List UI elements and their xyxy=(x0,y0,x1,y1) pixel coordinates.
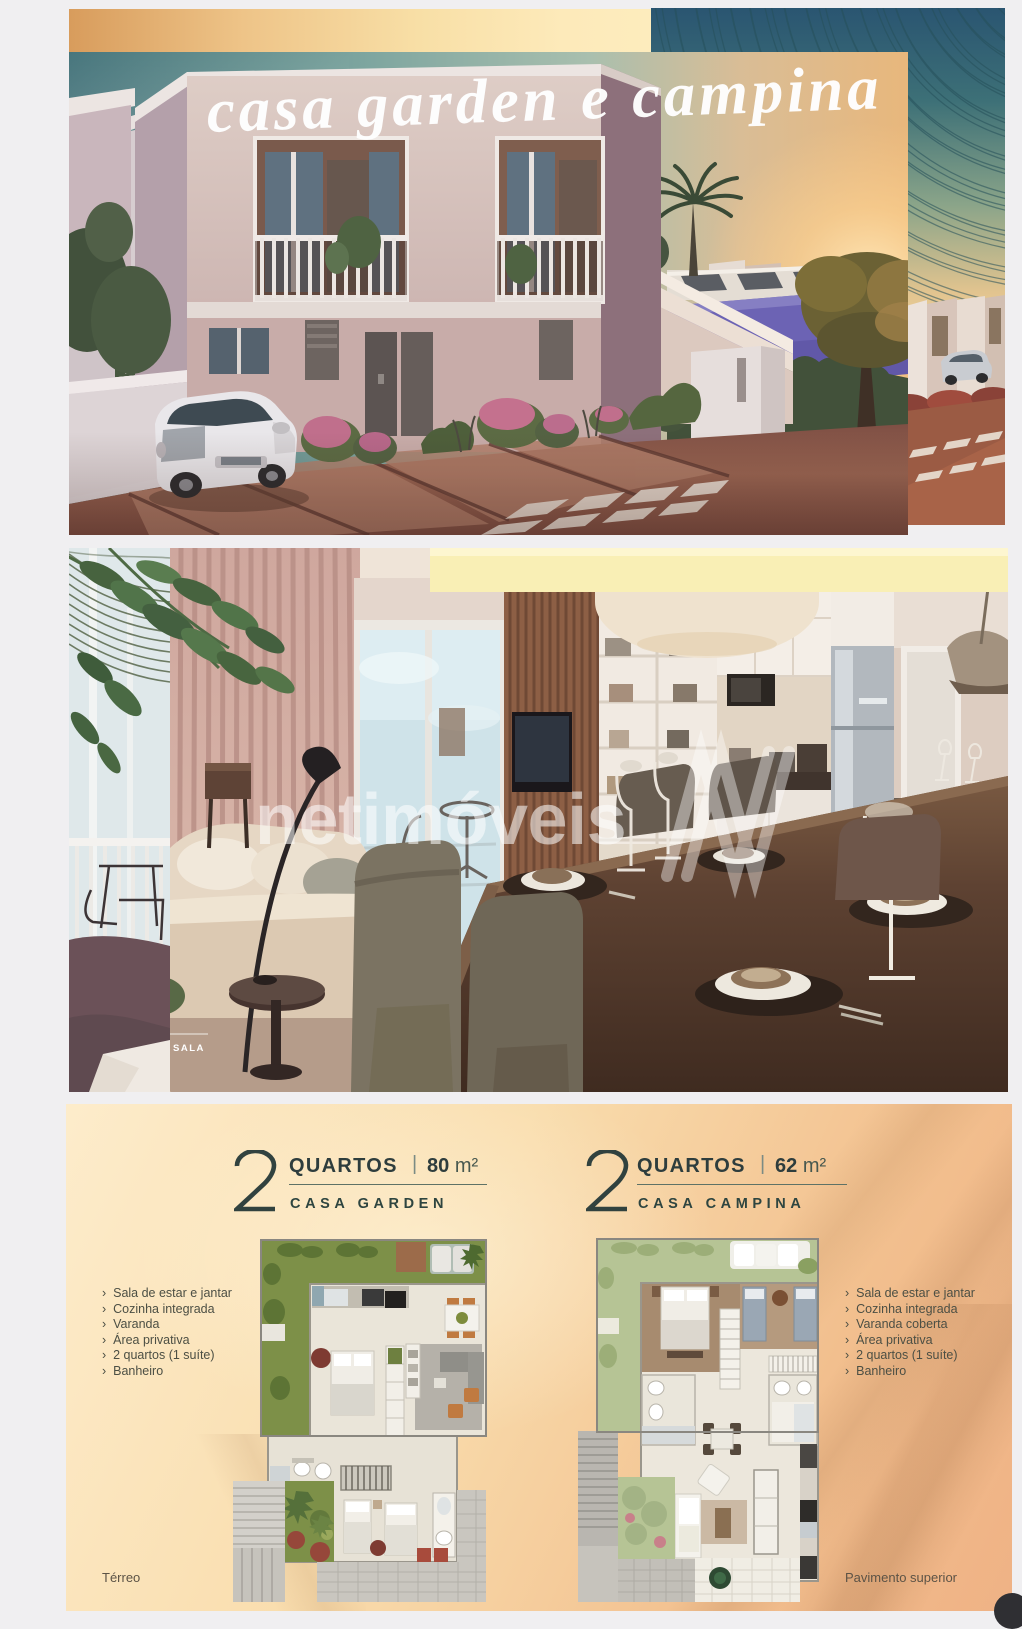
svg-text:SALA: SALA xyxy=(173,1043,205,1054)
svg-text:netimóveis: netimóveis xyxy=(255,780,626,860)
